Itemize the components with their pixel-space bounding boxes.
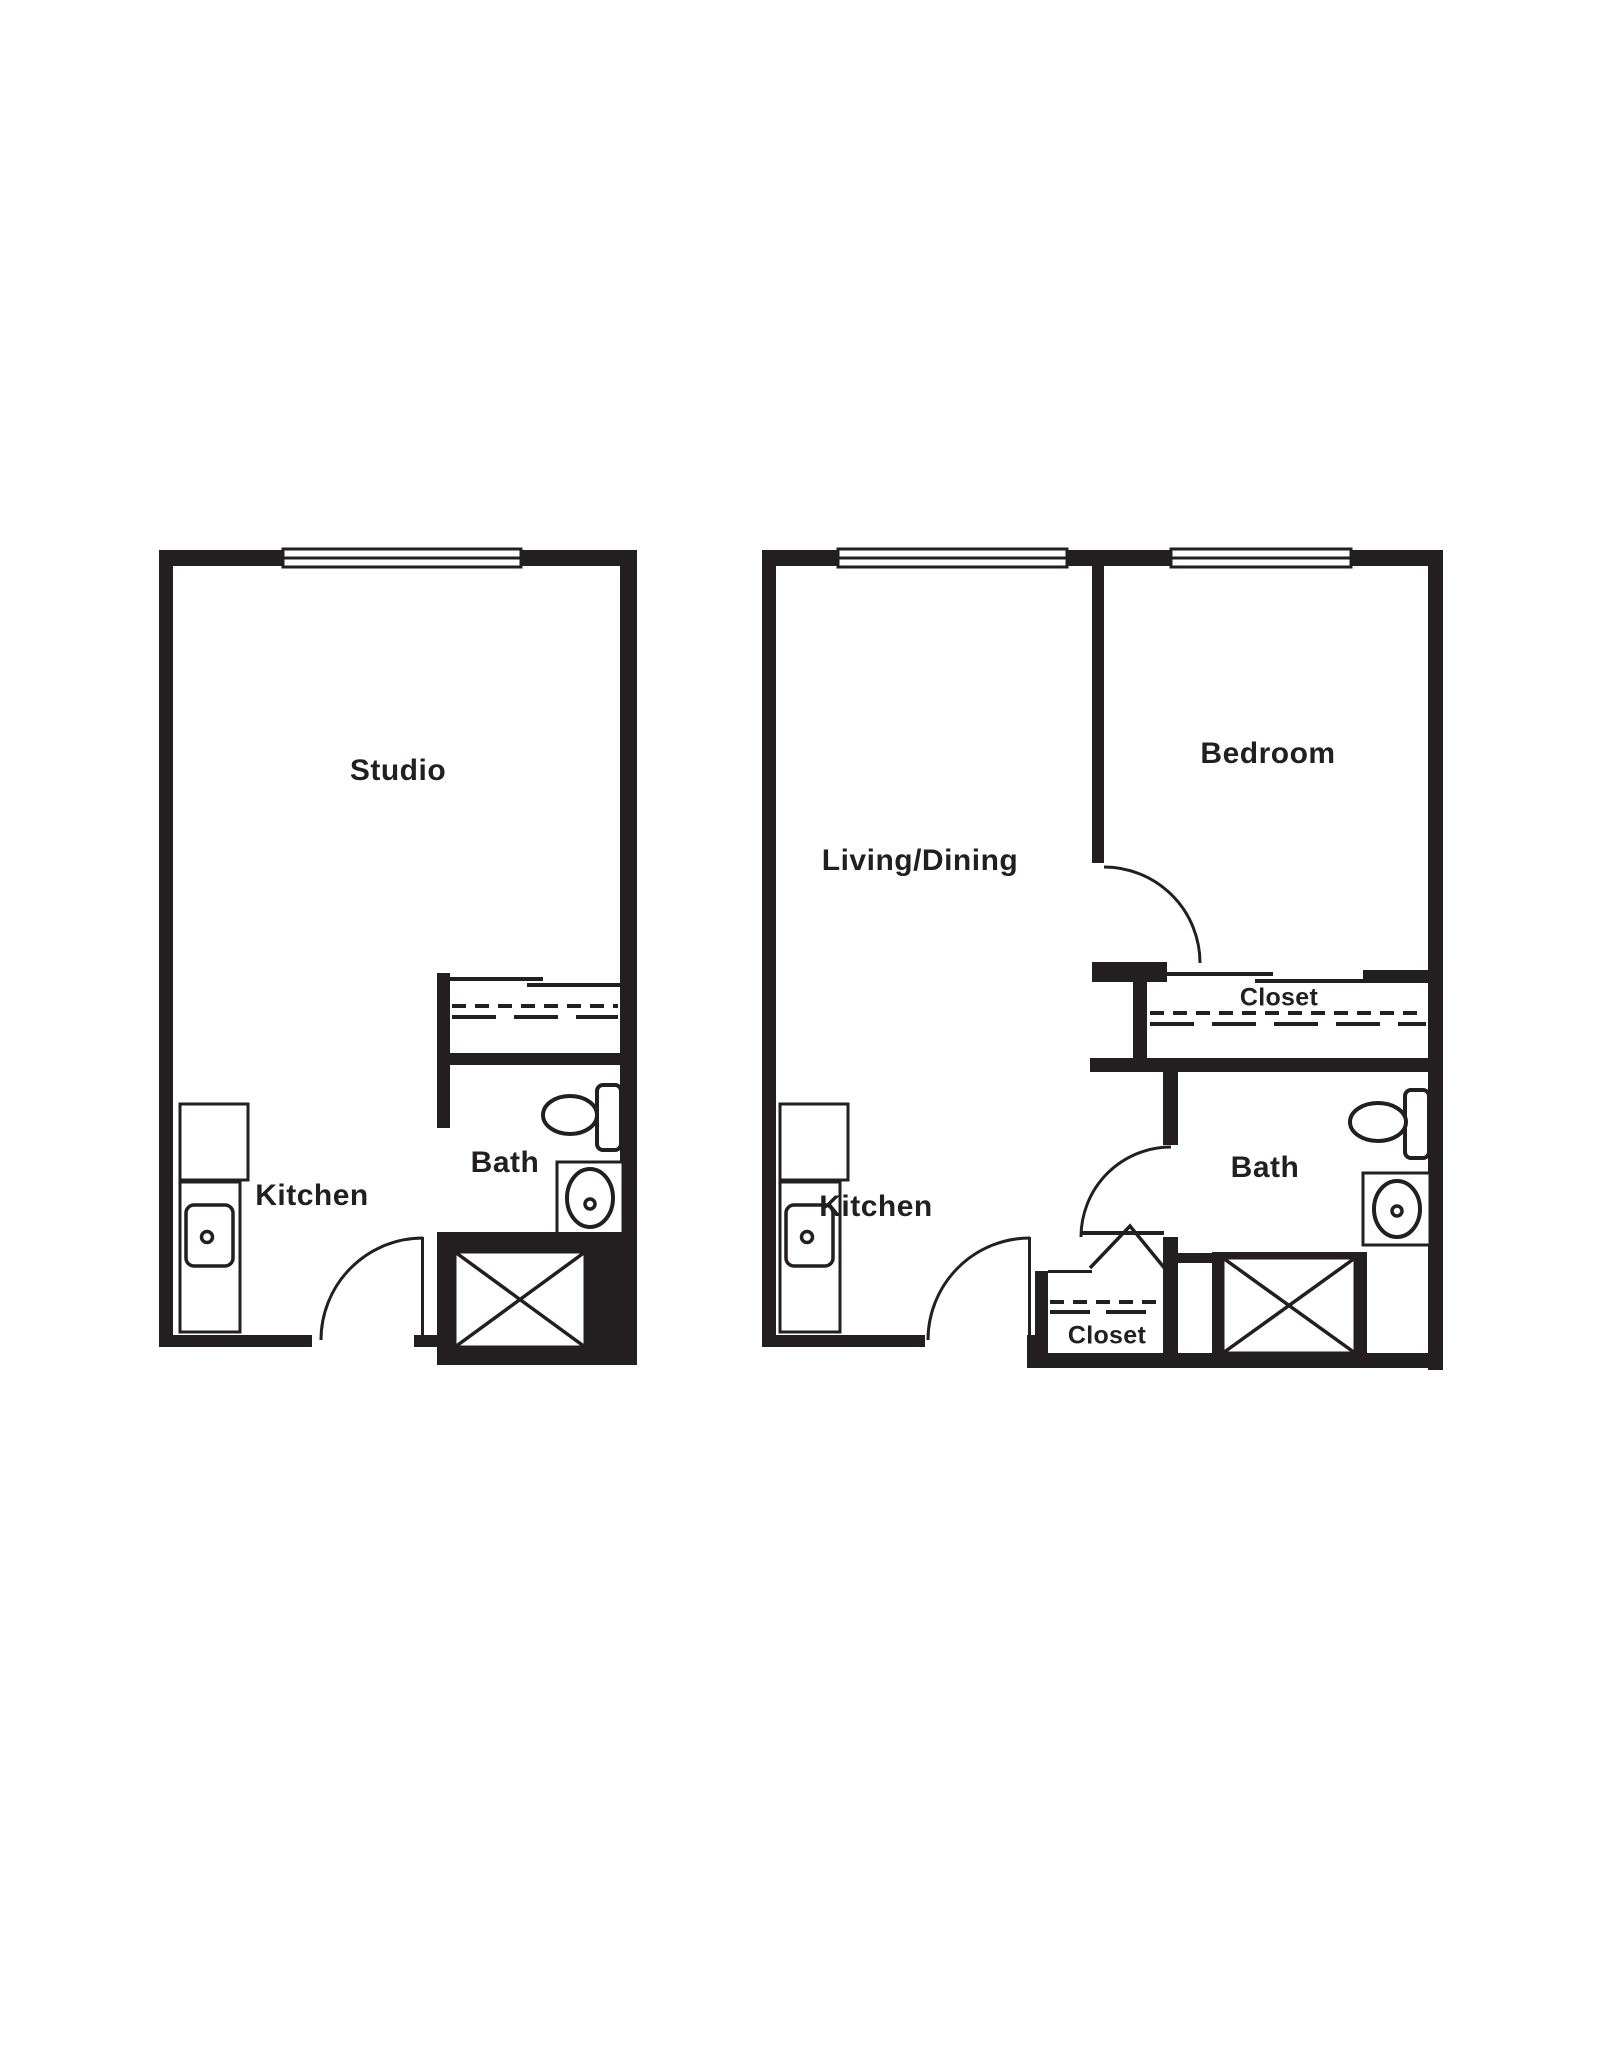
onebed-right-wall xyxy=(1428,550,1443,1370)
onebed-bath-label: Bath xyxy=(1231,1151,1300,1185)
onebed-closet-header-wall xyxy=(1092,962,1167,982)
onebed-closet-label: Closet xyxy=(1240,984,1318,1013)
onebed-entry-closet-label: Closet xyxy=(1068,1322,1146,1351)
studio-kitchen-label: Kitchen xyxy=(255,1179,369,1213)
onebed-entry-closet-right-wall xyxy=(1163,1237,1178,1357)
onebed-living-window-icon xyxy=(838,549,1067,567)
studio-bottom-wall xyxy=(159,1335,312,1347)
onebed-bedroom-door-icon xyxy=(1104,867,1200,963)
onebed-bedroom-label: Bedroom xyxy=(1200,737,1335,771)
onebed-shower-icon xyxy=(1212,1252,1367,1368)
studio-room-label: Studio xyxy=(350,754,446,788)
studio-plan xyxy=(159,549,637,1365)
onebed-bath-sink-icon xyxy=(1363,1173,1430,1245)
studio-left-wall xyxy=(159,550,173,1347)
studio-door-jamb xyxy=(414,1335,437,1347)
onebed-toilet-icon xyxy=(1350,1090,1429,1158)
onebed-kitchen-label: Kitchen xyxy=(819,1190,933,1224)
studio-kitchen-sink-icon xyxy=(186,1205,233,1266)
onebed-refrigerator-icon xyxy=(780,1104,848,1180)
one-bedroom-plan xyxy=(762,549,1443,1370)
onebed-closet-bottom-wall xyxy=(1090,1058,1428,1072)
studio-bath-sink-icon xyxy=(557,1162,623,1235)
onebed-entry-door-icon xyxy=(928,1237,1031,1340)
studio-closet-bottom-wall xyxy=(437,1053,637,1065)
onebed-bedroom-window-icon xyxy=(1171,549,1351,567)
studio-shower-icon xyxy=(437,1232,637,1365)
studio-entry-door-icon xyxy=(321,1237,424,1340)
onebed-bath-left-wall xyxy=(1163,1072,1178,1145)
studio-toilet-icon xyxy=(543,1085,621,1150)
onebed-bottom-wall xyxy=(762,1335,925,1347)
studio-bath-wall xyxy=(437,973,450,1128)
studio-closet-sliding-doors-icon xyxy=(449,977,620,987)
onebed-living-dining-label: Living/Dining xyxy=(822,844,1018,878)
onebed-entry-closet-left-wall xyxy=(1035,1271,1048,1335)
onebed-entry-closet-rod-icon xyxy=(1050,1302,1161,1312)
onebed-bedroom-partition-wall xyxy=(1092,560,1104,863)
studio-bath-label: Bath xyxy=(471,1146,540,1180)
studio-window-icon xyxy=(283,549,521,567)
onebed-chase-cap-wall xyxy=(1178,1253,1212,1263)
floor-plan-drawing xyxy=(0,0,1600,2070)
studio-refrigerator-icon xyxy=(180,1104,248,1180)
onebed-bath-door-icon xyxy=(1081,1147,1171,1237)
floor-plan-sheet: Studio Kitchen Bath Living/Dining Bedroo… xyxy=(0,0,1600,2070)
onebed-closet-rod-icon xyxy=(1150,1013,1426,1024)
studio-closet-rod-icon xyxy=(452,1006,618,1017)
onebed-left-wall xyxy=(762,550,776,1347)
onebed-closet-left-wall xyxy=(1133,982,1147,1058)
onebed-closet-right-header xyxy=(1363,970,1428,983)
onebed-closet-sliding-doors-icon xyxy=(1165,972,1363,983)
